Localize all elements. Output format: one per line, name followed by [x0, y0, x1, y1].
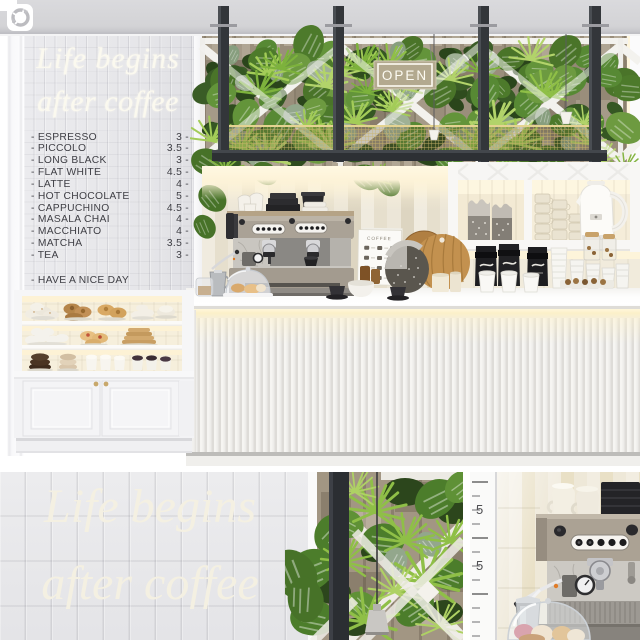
- svg-text:OPEN: OPEN: [382, 68, 428, 83]
- svg-text:COFFEE: COFFEE: [367, 236, 392, 241]
- svg-text:5: 5: [476, 502, 483, 517]
- svg-text:5: 5: [476, 558, 483, 573]
